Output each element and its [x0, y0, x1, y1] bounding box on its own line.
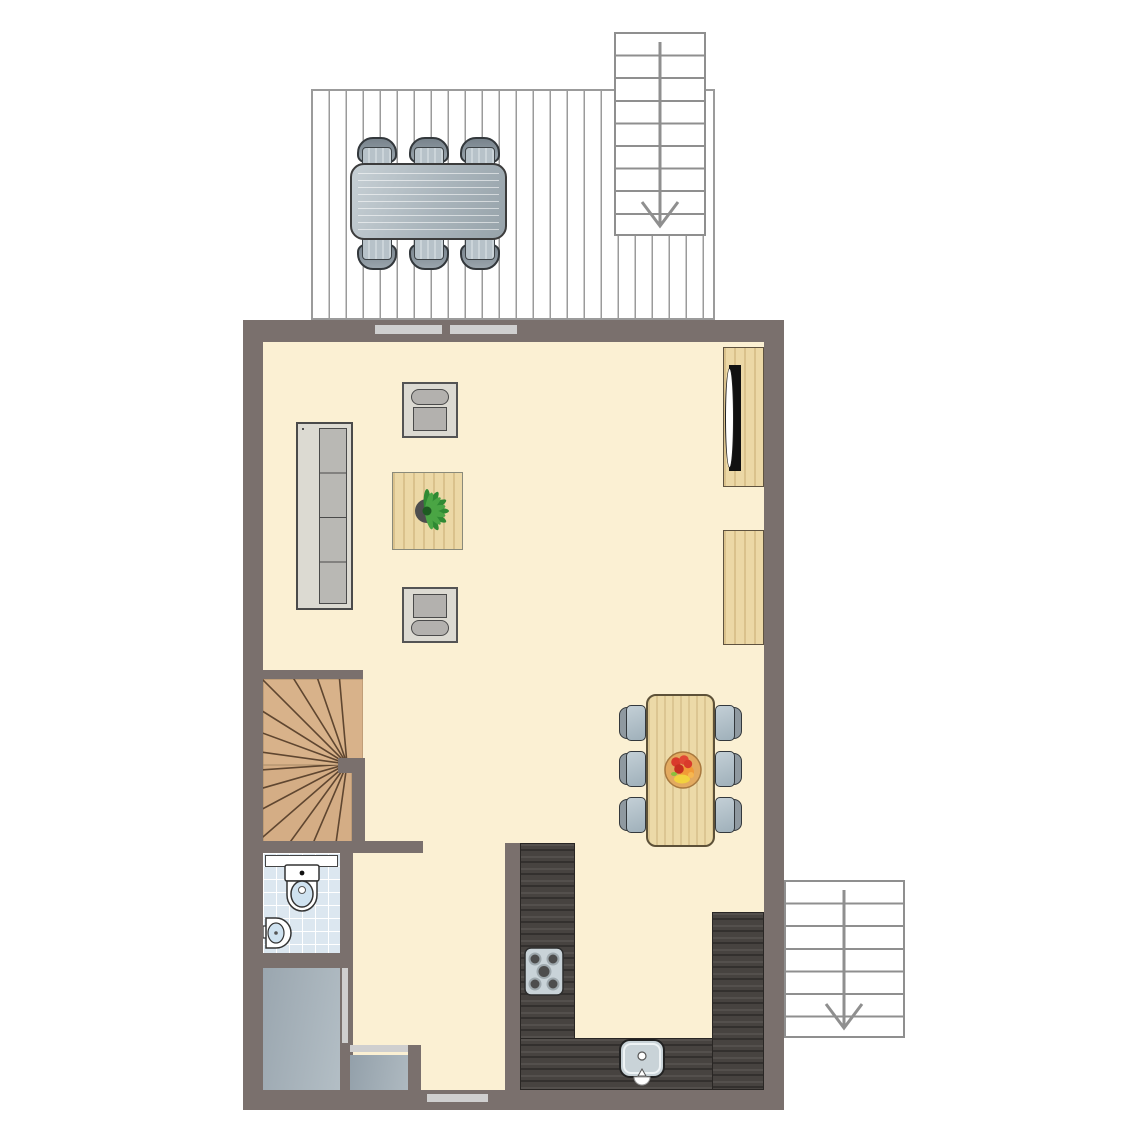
- dining-chair: [619, 797, 646, 833]
- bath-storage-wall: [263, 953, 340, 968]
- stair-newel-wall: [338, 758, 365, 773]
- tv-screen: [725, 368, 734, 468]
- coffee-table: [392, 472, 463, 550]
- exterior-staircase-top: [614, 32, 706, 236]
- closet-wall: [408, 1045, 421, 1090]
- kitchen-counter-right: [712, 912, 764, 1090]
- outdoor-dining-table: [350, 163, 507, 240]
- potted-plant-icon: [404, 488, 450, 534]
- house-outline: [243, 320, 784, 1110]
- hob-icon: [524, 947, 564, 996]
- deck-sliding-door-panel: [450, 325, 517, 334]
- stair-arrow-down-icon: [786, 882, 903, 1036]
- outdoor-chair: [408, 236, 450, 270]
- dining-chair: [715, 705, 742, 741]
- fruit-bowl-icon: [663, 750, 703, 790]
- entry-door: [427, 1094, 488, 1102]
- closet-door: [350, 1045, 410, 1052]
- bathroom: [263, 853, 340, 953]
- hall-wall: [263, 841, 423, 853]
- tv-cabinet: [723, 347, 764, 487]
- floor-plan-canvas: [0, 0, 1145, 1145]
- sideboard-cabinet: [723, 530, 764, 645]
- closet: [350, 1055, 408, 1090]
- wall-above-stairs: [263, 670, 363, 679]
- stair-arrow-down-icon: [616, 34, 704, 234]
- dining-chair: [715, 797, 742, 833]
- dining-table: [646, 694, 715, 847]
- deck-sliding-door-panel: [375, 325, 442, 334]
- storage-room: [263, 968, 340, 1090]
- exterior-staircase-bottom: [784, 880, 905, 1038]
- outdoor-chair: [356, 236, 398, 270]
- dining-chair: [619, 705, 646, 741]
- armchair-bottom: [402, 587, 458, 643]
- sofa-seats: [319, 428, 347, 604]
- storage-door: [342, 968, 348, 1043]
- dining-chair: [715, 751, 742, 787]
- kitchen-wall: [505, 843, 520, 1090]
- washbasin-icon: [263, 916, 293, 952]
- dining-chair: [619, 751, 646, 787]
- sink-icon: [619, 1039, 665, 1089]
- armchair-top: [402, 382, 458, 438]
- toilet-icon: [281, 864, 323, 918]
- sofa: [296, 422, 353, 610]
- outdoor-chair: [459, 236, 501, 270]
- table-slats: [358, 173, 499, 230]
